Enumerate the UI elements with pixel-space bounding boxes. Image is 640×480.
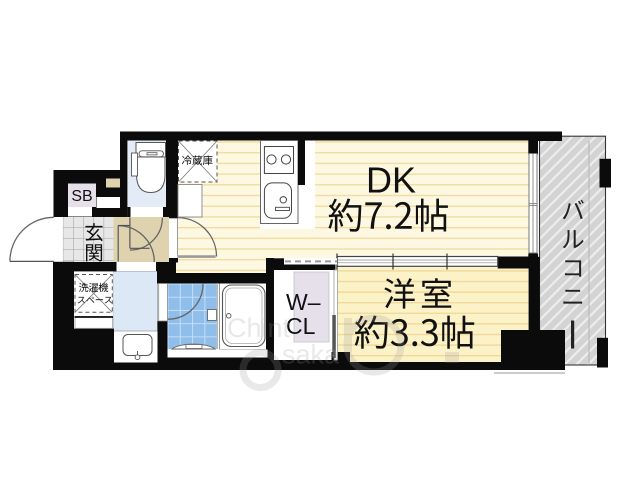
- svg-text:CL: CL: [286, 313, 316, 339]
- svg-text:DK: DK: [366, 160, 416, 201]
- svg-text:Chint: Chint: [227, 313, 291, 343]
- svg-text:W–: W–: [286, 289, 321, 315]
- svg-text:SB: SB: [71, 188, 92, 205]
- svg-text:saka: saka: [282, 340, 340, 370]
